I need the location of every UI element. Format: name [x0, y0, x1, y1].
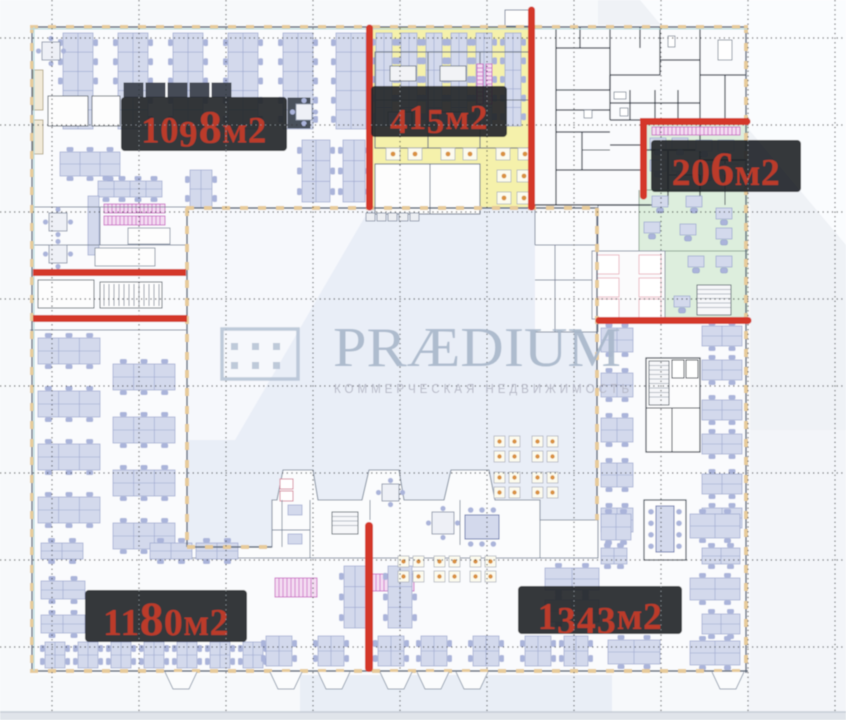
svg-text:206м2: 206м2: [672, 144, 781, 196]
svg-text:КОММЕРЧЕСКАЯ НЕДВИЖИМОСТЬ: КОММЕРЧЕСКАЯ НЕДВИЖИМОСТЬ: [334, 382, 633, 396]
svg-text:PRÆDIUM: PRÆDIUM: [333, 317, 621, 379]
svg-text:13 4 3 м2: 13 4 3 м2: [538, 596, 663, 642]
svg-text:4 15 м2: 4 15 м2: [390, 98, 488, 141]
svg-text:109 8м2: 109 8м2: [141, 102, 267, 156]
svg-text:1180м2: 1180м2: [103, 594, 229, 646]
